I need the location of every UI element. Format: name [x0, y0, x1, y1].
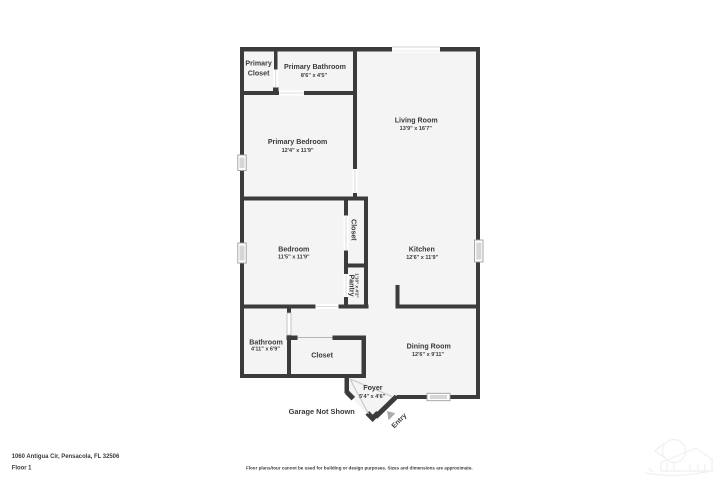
svg-text:Closet: Closet: [350, 219, 357, 241]
svg-text:Closet: Closet: [311, 351, 333, 359]
svg-text:Closet: Closet: [248, 69, 270, 77]
svg-text:12'6" x 11'9": 12'6" x 11'9": [406, 255, 438, 261]
svg-text:8'6" x 4'5": 8'6" x 4'5": [301, 73, 328, 79]
svg-text:13'9" x 16'7": 13'9" x 16'7": [400, 126, 433, 132]
svg-text:Primary Bathroom: Primary Bathroom: [284, 63, 346, 71]
svg-text:Living Room: Living Room: [395, 117, 438, 125]
svg-text:4'11" x 6'9": 4'11" x 6'9": [251, 346, 280, 352]
svg-text:Garage Not Shown: Garage Not Shown: [289, 407, 356, 416]
svg-text:Primary Bedroom: Primary Bedroom: [268, 138, 328, 146]
svg-text:Bathroom: Bathroom: [249, 338, 283, 346]
svg-text:Bedroom: Bedroom: [278, 246, 309, 254]
svg-text:Foyer: Foyer: [363, 384, 383, 392]
svg-text:Primary: Primary: [245, 60, 271, 68]
svg-text:12'6" x 9'11": 12'6" x 9'11": [412, 352, 444, 358]
svg-text:1'10" x 4'2": 1'10" x 4'2": [354, 273, 359, 297]
svg-text:1060 Antigua Cir, Pensacola, F: 1060 Antigua Cir, Pensacola, FL 32506: [12, 454, 120, 460]
svg-text:11'5" x 11'9": 11'5" x 11'9": [278, 255, 310, 261]
svg-text:Dining Room: Dining Room: [407, 343, 451, 351]
svg-text:5'4" x 4'6": 5'4" x 4'6": [359, 394, 386, 400]
svg-text:Floor 1: Floor 1: [12, 465, 32, 471]
svg-text:Kitchen: Kitchen: [409, 246, 435, 254]
svg-text:Floor plans/tour cannot be use: Floor plans/tour cannot be used for buil…: [246, 466, 473, 471]
svg-text:Pantry: Pantry: [348, 274, 356, 296]
svg-text:12'4" x 11'9": 12'4" x 11'9": [282, 148, 314, 154]
